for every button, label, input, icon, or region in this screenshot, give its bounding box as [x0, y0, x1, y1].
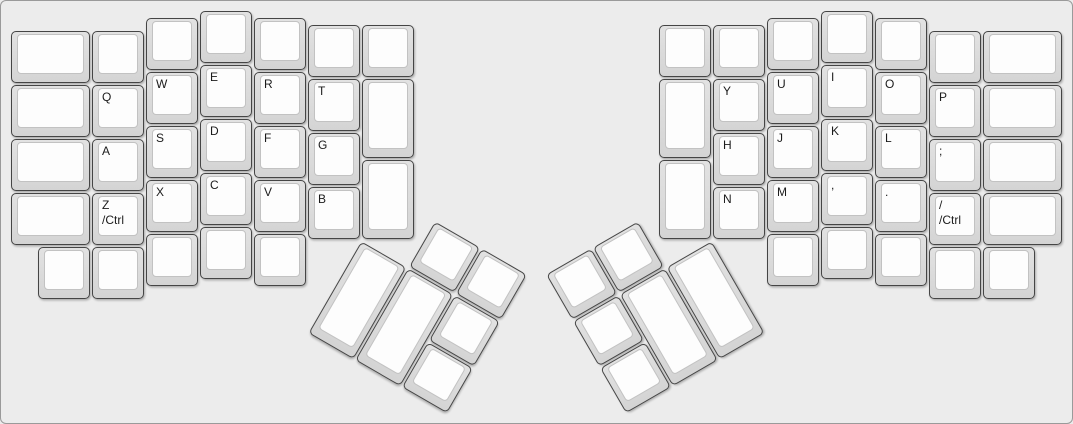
keycap-face: L [881, 129, 921, 169]
key-blank[interactable] [821, 227, 873, 279]
keycap-face: N [719, 190, 759, 230]
keycap-face [98, 34, 138, 74]
key-p[interactable]: P [929, 85, 981, 137]
key-blank[interactable] [983, 247, 1035, 299]
key-label: //Ctrl [939, 198, 974, 228]
keycap-face [935, 34, 975, 74]
keycap-face [368, 28, 408, 68]
key-label-line: Q [102, 90, 137, 105]
keycap-face: W [152, 75, 192, 115]
key-label-line: Z [102, 198, 137, 213]
key-label-line: X [156, 185, 191, 200]
keycap-face: Z/Ctrl [98, 196, 138, 236]
keycap-face [419, 227, 474, 282]
key-blank[interactable] [659, 79, 711, 158]
key-z-ctrl[interactable]: Z/Ctrl [92, 193, 144, 245]
key-label-line: U [777, 77, 812, 92]
keycap-face [260, 237, 300, 277]
keycap-face: D [206, 122, 246, 162]
keycap-face [665, 163, 705, 230]
keycap-face: A [98, 142, 138, 182]
keycap-face [989, 88, 1056, 128]
keycap-face: F [260, 129, 300, 169]
key-label-line: P [939, 90, 974, 105]
key-label: I [831, 70, 866, 85]
keycap-face: P [935, 88, 975, 128]
key-label-line: C [210, 178, 245, 193]
key-v[interactable]: V [254, 180, 306, 232]
key-blank[interactable] [92, 31, 144, 83]
key-label-line: I [831, 70, 866, 85]
key-label: M [777, 185, 812, 200]
keycap-face: H [719, 136, 759, 176]
key-blank[interactable] [92, 247, 144, 299]
key-e[interactable]: E [200, 65, 252, 117]
key-label [441, 230, 471, 248]
keycap-face: B [314, 190, 354, 230]
key-o[interactable]: O [875, 72, 927, 124]
keycap-face [665, 28, 705, 68]
key-label: C [210, 178, 245, 193]
key-label [557, 256, 587, 274]
keycap-face [773, 237, 813, 277]
key-label: P [939, 90, 974, 105]
keycap-face [260, 21, 300, 61]
key-w[interactable]: W [146, 72, 198, 124]
key-label-line: L [885, 131, 920, 146]
key-blank[interactable] [929, 247, 981, 299]
keycap-face [989, 142, 1056, 182]
keycap-face [553, 254, 608, 309]
keycap-face [17, 196, 84, 236]
keycap-face: Y [719, 82, 759, 122]
key-label-line: D [210, 124, 245, 139]
key-f[interactable]: F [254, 126, 306, 178]
keycap-face: U [773, 75, 813, 115]
key-label-line: Y [723, 84, 758, 99]
key-label-line: R [264, 77, 299, 92]
key-k[interactable]: K [821, 119, 873, 171]
key-y[interactable]: Y [713, 79, 765, 131]
key-c[interactable]: C [200, 173, 252, 225]
key-label-line: J [777, 131, 812, 146]
keycap-face [17, 88, 84, 128]
key-n[interactable]: N [713, 187, 765, 239]
key-x[interactable]: X [146, 180, 198, 232]
key-blank[interactable] [659, 160, 711, 239]
key-label: Y [723, 84, 758, 99]
key-label: L [885, 131, 920, 146]
key-blank[interactable] [875, 18, 927, 70]
key-label: Z/Ctrl [102, 198, 137, 228]
keycap-face: Q [98, 88, 138, 128]
key-label-line: A [102, 144, 137, 159]
keycap-face: E [206, 68, 246, 108]
key-label: H [723, 138, 758, 153]
key-label-line: / [939, 198, 974, 213]
key-blank[interactable] [983, 193, 1062, 245]
key-label: B [318, 192, 353, 207]
keycap-face [206, 14, 246, 54]
key-blank[interactable] [308, 25, 360, 77]
key-label-line: W [156, 77, 191, 92]
keycap-face: R [260, 75, 300, 115]
key-blank[interactable] [983, 31, 1062, 83]
keycap-face [44, 250, 84, 290]
key-comma[interactable]: , [821, 173, 873, 225]
key-semicolon[interactable]: ; [929, 139, 981, 191]
keycap-face [773, 21, 813, 61]
key-label-line: F [264, 131, 299, 146]
key-blank[interactable] [659, 25, 711, 77]
key-blank[interactable] [821, 11, 873, 63]
keycap-face: . [881, 183, 921, 223]
keycap-face: J [773, 129, 813, 169]
key-label-line: K [831, 124, 866, 139]
key-l[interactable]: L [875, 126, 927, 178]
key-h[interactable]: H [713, 133, 765, 185]
key-label: K [831, 124, 866, 139]
key-blank[interactable] [11, 85, 90, 137]
key-label: N [723, 192, 758, 207]
key-q[interactable]: Q [92, 85, 144, 137]
keycap-face [989, 196, 1056, 236]
keycap-face [17, 34, 84, 74]
key-blank[interactable] [200, 11, 252, 63]
key-label-line: M [777, 185, 812, 200]
key-label: X [156, 185, 191, 200]
key-period[interactable]: . [875, 180, 927, 232]
key-label-line: T [318, 84, 353, 99]
key-label-line: V [264, 185, 299, 200]
key-label: ; [939, 144, 974, 159]
key-blank[interactable] [11, 193, 90, 245]
keycap-face [206, 230, 246, 270]
keycap-face [989, 34, 1056, 74]
keycap-face: G [314, 136, 354, 176]
key-label-line: /Ctrl [939, 213, 974, 228]
key-a[interactable]: A [92, 139, 144, 191]
keycap-face [152, 237, 192, 277]
key-label-line: N [723, 192, 758, 207]
key-slash-ctrl[interactable]: //Ctrl [929, 193, 981, 245]
key-label: , [831, 178, 866, 193]
keycap-face: O [881, 75, 921, 115]
key-g[interactable]: G [308, 133, 360, 185]
key-blank[interactable] [146, 234, 198, 286]
key-blank[interactable] [254, 234, 306, 286]
keycap-face: X [152, 183, 192, 223]
keycap-face [152, 21, 192, 61]
keycap-face: T [314, 82, 354, 122]
key-blank[interactable] [767, 18, 819, 70]
key-i[interactable]: I [821, 65, 873, 117]
key-label [368, 250, 398, 268]
keycap-face [368, 82, 408, 149]
keycap-face [314, 28, 354, 68]
key-label: V [264, 185, 299, 200]
key-j[interactable]: J [767, 126, 819, 178]
key-blank[interactable] [713, 25, 765, 77]
key-b[interactable]: B [308, 187, 360, 239]
keycap-face [665, 82, 705, 149]
key-label [604, 229, 634, 247]
keycap-face [600, 227, 655, 282]
keycap-face [881, 21, 921, 61]
key-label-line: S [156, 131, 191, 146]
key-blank[interactable] [38, 247, 90, 299]
keycap-face: M [773, 183, 813, 223]
keyboard: QWERTASDFGZ/CtrlXCVBYUIOPHJKL;NM,.//Ctrl [0, 0, 1073, 424]
key-t[interactable]: T [308, 79, 360, 131]
key-blank[interactable] [362, 160, 414, 239]
key-label-line: /Ctrl [102, 213, 137, 228]
key-label-line: O [885, 77, 920, 92]
key-label: W [156, 77, 191, 92]
keycap-face [989, 250, 1029, 290]
keycap-face: , [827, 176, 867, 216]
key-label: O [885, 77, 920, 92]
key-blank[interactable] [200, 227, 252, 279]
key-label [488, 257, 518, 275]
key-blank[interactable] [254, 18, 306, 70]
key-label-line: E [210, 70, 245, 85]
key-label-line: ; [939, 144, 974, 159]
key-label: R [264, 77, 299, 92]
key-m[interactable]: M [767, 180, 819, 232]
key-blank[interactable] [11, 31, 90, 83]
key-label: Q [102, 90, 137, 105]
key-label: G [318, 138, 353, 153]
keycap-face: ; [935, 142, 975, 182]
keycap-face [827, 230, 867, 270]
keycap-face [98, 250, 138, 290]
key-label-line: G [318, 138, 353, 153]
key-label: S [156, 131, 191, 146]
key-label-line: H [723, 138, 758, 153]
keycap-face [466, 254, 521, 309]
key-label: T [318, 84, 353, 99]
key-label-line: , [831, 178, 866, 193]
keycap-face: K [827, 122, 867, 162]
key-label: . [885, 185, 920, 200]
key-blank[interactable] [11, 139, 90, 191]
keycap-face: S [152, 129, 192, 169]
key-label: U [777, 77, 812, 92]
key-r[interactable]: R [254, 72, 306, 124]
key-label-line: B [318, 192, 353, 207]
key-label-line: . [885, 185, 920, 200]
key-blank[interactable] [983, 85, 1062, 137]
key-u[interactable]: U [767, 72, 819, 124]
key-blank[interactable] [146, 18, 198, 70]
key-label: E [210, 70, 245, 85]
key-blank[interactable] [767, 234, 819, 286]
keycap-face [17, 142, 84, 182]
keycap-face [719, 28, 759, 68]
key-label: D [210, 124, 245, 139]
key-label: J [777, 131, 812, 146]
key-label [678, 249, 708, 267]
key-blank[interactable] [875, 234, 927, 286]
keycap-face: //Ctrl [935, 196, 975, 236]
key-blank[interactable] [983, 139, 1062, 191]
keycap-face [827, 14, 867, 54]
key-blank[interactable] [929, 31, 981, 83]
key-s[interactable]: S [146, 126, 198, 178]
key-label: F [264, 131, 299, 146]
keycap-face [935, 250, 975, 290]
keycap-face: I [827, 68, 867, 108]
key-blank[interactable] [362, 25, 414, 77]
keycap-face: V [260, 183, 300, 223]
keycap-face: C [206, 176, 246, 216]
keycap-face [881, 237, 921, 277]
key-d[interactable]: D [200, 119, 252, 171]
key-blank[interactable] [362, 79, 414, 158]
key-label: A [102, 144, 137, 159]
keycap-face [368, 163, 408, 230]
